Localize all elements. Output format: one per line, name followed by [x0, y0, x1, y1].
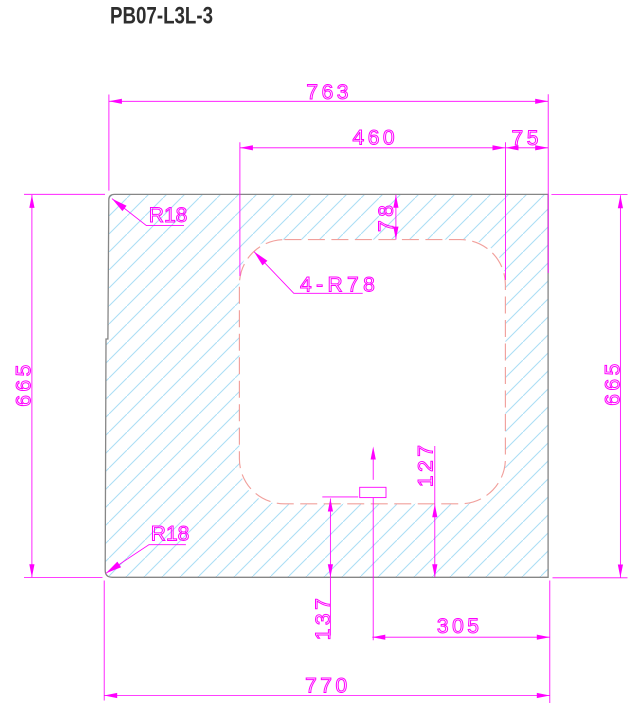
svg-text:665: 665 — [602, 360, 625, 406]
svg-text:305: 305 — [437, 615, 483, 638]
svg-text:PB07-L3L-3: PB07-L3L-3 — [110, 3, 213, 30]
svg-text:78: 78 — [375, 202, 398, 232]
svg-text:770: 770 — [305, 674, 351, 697]
svg-text:665: 665 — [13, 361, 36, 407]
svg-text:R18: R18 — [151, 523, 190, 546]
svg-text:137: 137 — [312, 595, 335, 641]
svg-text:460: 460 — [353, 127, 399, 150]
svg-text:4-R78: 4-R78 — [300, 274, 379, 297]
svg-text:75: 75 — [512, 127, 542, 150]
svg-text:R18: R18 — [149, 204, 188, 227]
svg-text:127: 127 — [414, 442, 437, 488]
svg-text:763: 763 — [306, 81, 352, 104]
